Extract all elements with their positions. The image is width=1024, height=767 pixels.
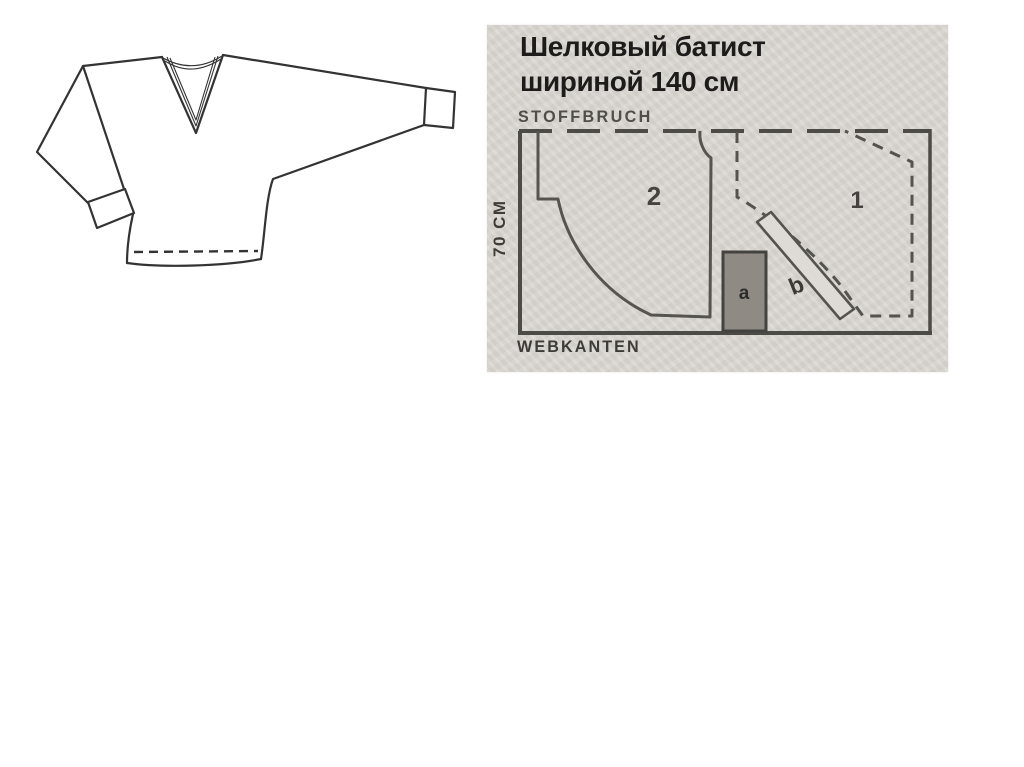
cutting-layout-panel: Шелковый батист шириной 140 см STOFFBRUC… [487,25,948,372]
left-cuff [88,189,134,228]
pattern-piece-b-strip [757,212,854,319]
hem-stitch-dashed-line [134,251,258,252]
right-side-and-sleeve-underarm [261,125,424,259]
blouse-technical-drawing [18,8,482,302]
pattern-piece-2-outline [538,131,711,317]
cutting-layout-diagram: 2 1 a b 70 CM [487,25,948,372]
right-sleeve-top-edge [223,55,426,88]
left-sleeve-underarm-seam [83,66,124,189]
hem-edge [127,259,261,266]
slide: Шелковый батист шириной 140 см STOFFBRUC… [0,0,1024,767]
fabric-width-label: 70 CM [490,199,509,257]
right-cuff [424,88,455,128]
left-shoulder-and-sleeve-outer [37,57,162,203]
piece-2-label: 2 [647,181,661,211]
piece-1-label: 1 [850,187,863,214]
webkanten-selvage-label: WEBKANTEN [517,337,641,357]
left-side-seam [127,214,133,263]
piece-a-label: a [739,283,750,304]
